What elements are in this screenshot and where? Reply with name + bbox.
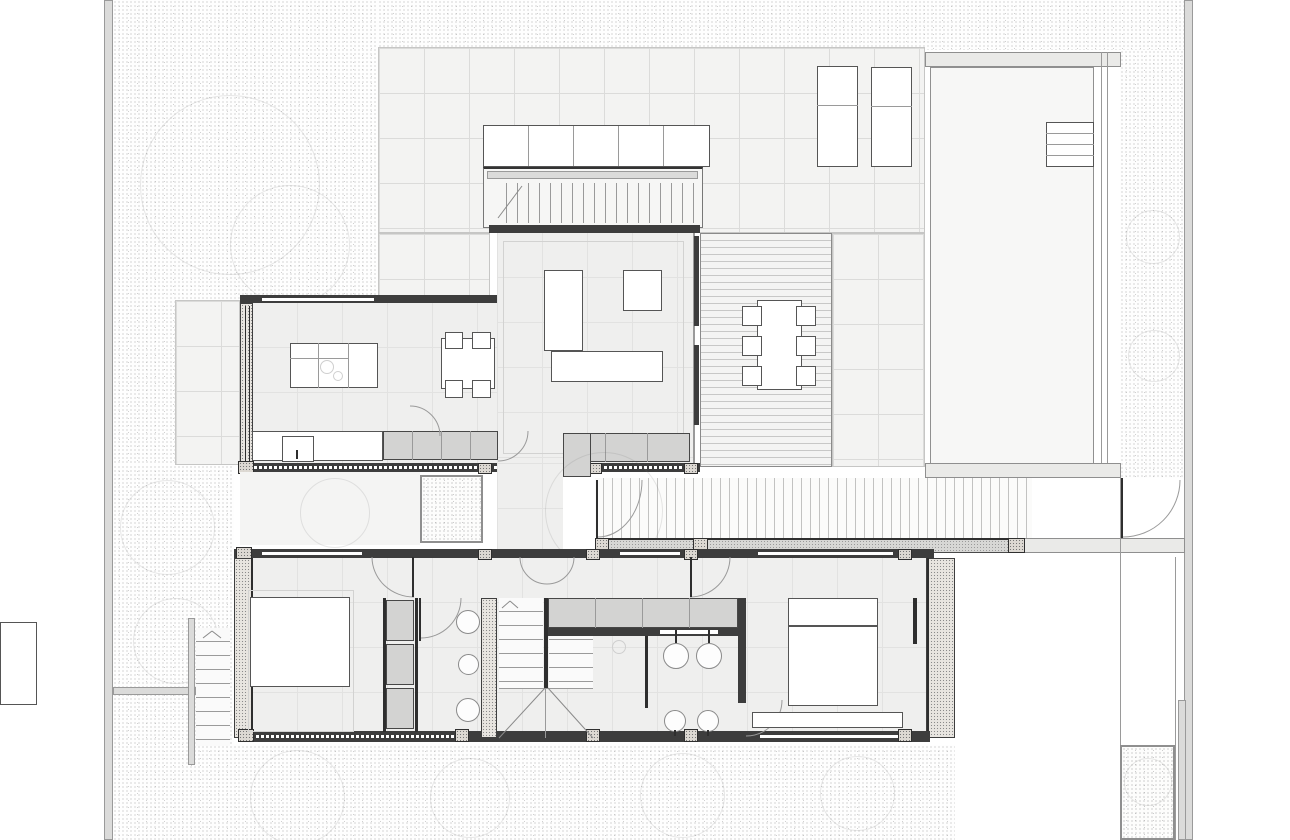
wardrobe1-box-3 <box>386 688 414 729</box>
bush-9 <box>1126 210 1180 264</box>
pantry-door-arc <box>498 431 528 461</box>
entry-stair-landing <box>487 171 698 179</box>
sun-lounger-1 <box>817 66 858 167</box>
bath2-basin-1-stem <box>675 630 677 643</box>
master-door-arc-n <box>690 557 730 597</box>
post-wing2-s1 <box>455 729 469 742</box>
stair-winder-line <box>545 688 546 738</box>
ext-stair-treads <box>196 628 230 746</box>
terrace-west-patch <box>175 300 240 465</box>
cooktop-burner-2 <box>333 371 343 381</box>
sun-lounger-1-fold <box>817 105 858 106</box>
ext-stair-wall <box>188 618 195 765</box>
bath2-basin-2 <box>696 643 722 669</box>
bush-8 <box>820 756 895 831</box>
outdoor-chair-6 <box>796 366 816 386</box>
master-headboard <box>788 598 878 626</box>
bath1-fixture-3 <box>456 698 480 722</box>
site-wall-left <box>104 0 113 840</box>
walkway-east-line-1 <box>1120 478 1121 745</box>
bath1-door-arc <box>421 598 461 638</box>
bush-5 <box>250 750 345 840</box>
kitchen-door-arc <box>410 406 440 436</box>
sofa-bottom <box>551 351 663 382</box>
entry-stair-arrow <box>498 186 522 218</box>
planter-se-bush <box>1124 758 1172 806</box>
bath2-partition <box>645 636 648 708</box>
corridor-door-arc-1 <box>520 557 547 584</box>
kitchen-window-west-a <box>245 306 246 463</box>
counter-g1-div-3 <box>470 431 471 460</box>
skylight-row <box>483 125 710 167</box>
bath2-basin-2-stem <box>708 630 710 643</box>
pool-step-line-3 <box>1046 155 1094 156</box>
patio-bush <box>300 478 370 548</box>
stair-run-left <box>499 598 543 689</box>
bedroom1-door-leaf <box>412 557 414 597</box>
kitchen-window-north <box>262 298 374 301</box>
master-sliding-leaf <box>913 598 917 644</box>
dining-chair-4 <box>472 380 491 398</box>
kitchen-island <box>290 343 378 388</box>
ext-stair-chevron-a <box>203 631 212 638</box>
post-walkway-3 <box>1008 538 1025 553</box>
outdoor-chair-3 <box>742 366 762 386</box>
post-wing2-n2 <box>586 549 600 560</box>
bath1-fixture-2 <box>458 654 479 675</box>
walkway-door-arc <box>598 480 642 537</box>
island-divider-1 <box>318 343 319 388</box>
stair-winder-diag-2 <box>548 688 593 738</box>
skylight-divider-4 <box>663 126 664 166</box>
island-divider-h <box>290 358 348 359</box>
sofa-right <box>623 270 662 311</box>
island-divider-2 <box>348 343 349 388</box>
bush-7 <box>640 753 725 838</box>
sliding-door-living-b <box>694 345 699 425</box>
curtain-track-south-2 <box>254 735 454 738</box>
bush-6 <box>430 758 510 838</box>
wardrobe-row-div-2 <box>642 598 643 628</box>
outdoor-chair-4 <box>796 306 816 326</box>
window-wing2-n3 <box>758 552 893 555</box>
master-bench <box>752 712 903 728</box>
bath1-fixture-1 <box>456 610 480 634</box>
window-wing2-n2 <box>620 552 680 555</box>
sun-lounger-2 <box>871 67 912 167</box>
counter-row <box>252 431 383 461</box>
pool-step-line-1 <box>1046 133 1094 134</box>
bed-1 <box>250 597 350 687</box>
utility-box <box>0 622 37 705</box>
floor-plan-canvas <box>0 0 1290 840</box>
terrace-left <box>378 233 490 302</box>
dining-chair-2 <box>472 332 491 349</box>
outdoor-chair-2 <box>742 336 762 356</box>
pool-coping-bottom <box>925 463 1121 478</box>
post-wing2-s4 <box>898 729 912 742</box>
pool-coping-top <box>925 52 1121 67</box>
bath2-bidet <box>697 710 719 732</box>
counter-g2-div-2 <box>647 433 648 462</box>
pool-step-line-2 <box>1046 144 1094 145</box>
bath2-basin-1 <box>663 643 689 669</box>
landing-slab <box>1010 538 1185 553</box>
kitchen-sink <box>282 436 314 462</box>
stair-winder-diag-1 <box>499 688 545 738</box>
window-wing2-n1 <box>262 552 362 555</box>
master-bed <box>788 626 878 706</box>
wardrobe-row <box>548 598 738 628</box>
bush-2 <box>230 185 350 305</box>
planter-mid <box>420 475 483 543</box>
walkway-east-line-2 <box>1175 557 1176 840</box>
entry-stair-treads <box>496 183 698 223</box>
post-wing2-n1 <box>478 549 492 560</box>
outdoor-chair-5 <box>796 336 816 356</box>
bedroom1-door-arc <box>372 557 414 597</box>
gate-arc <box>1123 480 1180 537</box>
bush-3 <box>120 480 215 575</box>
dining-chair-3 <box>445 380 463 398</box>
garden-top-strip <box>378 0 1184 50</box>
wing2-east-glass <box>927 558 929 736</box>
stair-chevron-a <box>502 601 510 608</box>
post-upper-s1 <box>478 463 492 474</box>
wall-master <box>738 598 746 703</box>
stair-chevron-b <box>510 601 518 608</box>
cooktop-burner-1 <box>320 360 334 374</box>
counter-g1-div-2 <box>441 431 442 460</box>
terrace-right <box>832 233 925 467</box>
sun-lounger-2-fold <box>871 106 912 107</box>
post-upper-se <box>684 463 698 474</box>
garden-right-strip <box>1120 50 1184 478</box>
sink-faucet <box>296 450 298 459</box>
bath2-lamp <box>612 640 626 654</box>
skylight-divider-2 <box>573 126 574 166</box>
pool-edge-line-1 <box>1101 52 1102 477</box>
bath2-bidet-stem <box>707 730 709 736</box>
boundary-wall-se <box>1178 700 1186 840</box>
wall-bath1-stair <box>481 598 497 738</box>
wardrobe1-box-1 <box>386 600 414 641</box>
wall-living-north <box>489 225 700 233</box>
pool-edge-line-2 <box>1107 52 1108 477</box>
ext-stair-chevron-b <box>212 631 221 638</box>
dining-chair-1 <box>445 332 463 349</box>
sofa-left <box>544 270 583 351</box>
bath2-wc-stem <box>674 730 676 736</box>
bath2-wc <box>664 710 686 732</box>
corridor-door-arc-2 <box>547 557 574 584</box>
wardrobe1-box-2 <box>386 644 414 685</box>
wall-wing2-east <box>926 558 955 738</box>
master-door-leaf-n <box>690 557 692 597</box>
kitchen-window-west-b <box>249 306 250 463</box>
post-wing2-s3 <box>684 729 698 742</box>
outdoor-chair-1 <box>742 306 762 326</box>
skylight-divider-3 <box>618 126 619 166</box>
bush-10 <box>1128 330 1180 382</box>
sliding-door-living-a <box>694 236 699 326</box>
wardrobe-row-div-3 <box>689 598 690 628</box>
wardrobe1-wall-b <box>415 598 418 732</box>
post-wing2-n4 <box>898 549 912 560</box>
garden-left-strip <box>113 300 175 465</box>
retaining-wall <box>113 687 196 695</box>
wardrobe-row-div-1 <box>595 598 596 628</box>
skylight-divider-1 <box>528 126 529 166</box>
